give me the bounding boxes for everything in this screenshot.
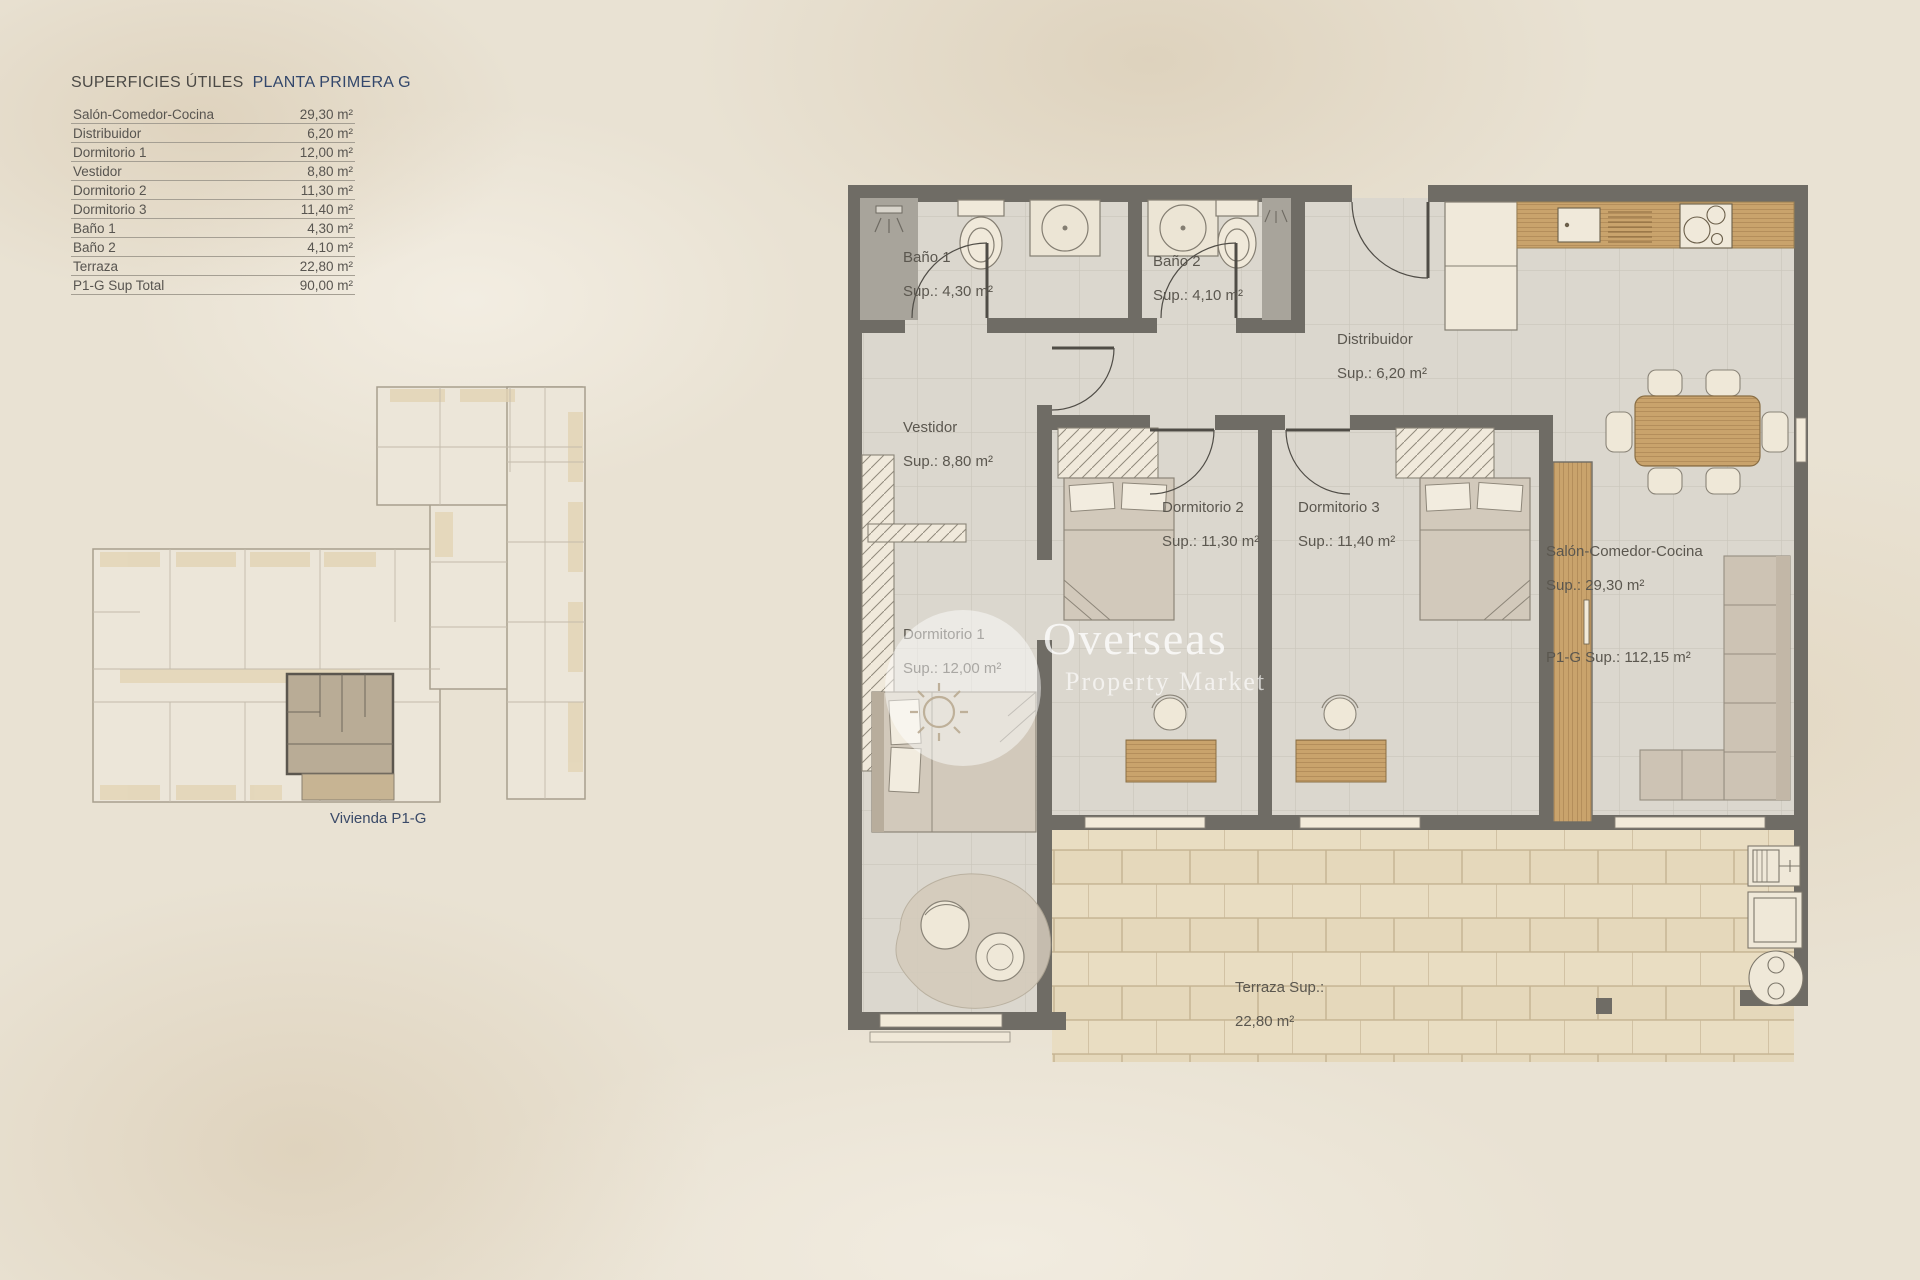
room-label-total: P1-G Sup.: 112,15 m² [1546,650,1691,665]
row-value: 4,10 m² [307,240,353,255]
wardrobe [1058,428,1158,478]
row-label: Baño 2 [73,240,116,255]
lounge-chair [921,901,969,949]
room-name: Dormitorio 1 [903,626,985,643]
table-row: P1-G Sup Total90,00 m² [71,276,355,295]
row-label: Dormitorio 3 [73,202,147,217]
row-label: Terraza [73,259,118,274]
rug [896,874,1051,1008]
outdoor-burner [1749,951,1803,1005]
bed [872,692,1036,832]
desk [1296,740,1386,782]
table-row: Vestidor8,80 m² [71,162,355,181]
table-row: Baño 14,30 m² [71,219,355,238]
table-row: Baño 24,10 m² [71,238,355,257]
table-title-main: SUPERFICIES ÚTILES [71,74,244,91]
sink-icon [1030,200,1100,256]
bed [1064,478,1174,620]
kitchen-counter [1517,202,1794,248]
room-sup: Sup.: 29,30 m² [1546,578,1703,593]
table-row: Distribuidor6,20 m² [71,124,355,143]
room-label-bano2: Baño 2Sup.: 4,10 m² [1153,254,1243,303]
row-value: 22,80 m² [300,259,353,274]
room-name: Distribuidor [1337,331,1413,348]
room-sup: Sup.: 8,80 m² [903,454,993,469]
room-label-salon: Salón-Comedor-CocinaSup.: 29,30 m² [1546,544,1703,593]
room-sup: Sup.: 6,20 m² [1337,366,1427,381]
surfaces-table: SUPERFICIES ÚTILESPLANTA PRIMERA G Salón… [71,74,355,295]
desk-chair [1324,698,1356,730]
room-name: P1-G Sup.: 112,15 m² [1546,649,1691,666]
room-sup: Sup.: 11,40 m² [1298,534,1395,549]
table-row: Terraza22,80 m² [71,257,355,276]
room-name: Terraza Sup.: [1235,979,1324,996]
row-label: Distribuidor [73,126,141,141]
room-label-distribuidor: DistribuidorSup.: 6,20 m² [1337,332,1427,381]
room-sup: Sup.: 4,10 m² [1153,288,1243,303]
row-label: P1-G Sup Total [73,278,164,293]
wardrobe [1396,428,1494,478]
row-value: 4,30 m² [307,221,353,236]
row-label: Baño 1 [73,221,116,236]
overview-caption: Vivienda P1-G [330,810,426,827]
row-value: 12,00 m² [300,145,353,160]
lounge-chair [976,933,1024,981]
table-row: Dormitorio 112,00 m² [71,143,355,162]
wood-partition [1553,462,1592,822]
row-label: Dormitorio 2 [73,183,147,198]
row-value: 11,30 m² [301,183,353,198]
room-label-bano1: Baño 1Sup.: 4,30 m² [903,250,993,299]
room-label-dorm1: Dormitorio 1Sup.: 12,00 m² [903,627,1001,676]
room-name: Baño 2 [1153,253,1201,270]
sink-icon [1148,200,1218,256]
room-name: Vestidor [903,419,957,436]
terrace-floor [1052,830,1794,1062]
floor-plan-sheet: SUPERFICIES ÚTILESPLANTA PRIMERA G Salón… [0,0,1920,1280]
room-name: Baño 1 [903,249,951,266]
room-sup: Sup.: 11,30 m² [1162,534,1259,549]
table-row: Salón-Comedor-Cocina29,30 m² [71,105,355,124]
room-sup: 22,80 m² [1235,1014,1324,1029]
desk-chair [1154,698,1186,730]
row-value: 29,30 m² [300,107,353,122]
table-title: SUPERFICIES ÚTILESPLANTA PRIMERA G [71,74,355,92]
row-value: 90,00 m² [300,278,353,293]
room-name: Salón-Comedor-Cocina [1546,543,1703,560]
building-overview-plan [80,372,725,812]
room-name: Dormitorio 2 [1162,499,1244,516]
overview-highlighted-unit [287,674,394,800]
table-row: Dormitorio 211,30 m² [71,181,355,200]
row-label: Dormitorio 1 [73,145,147,160]
room-label-vestidor: VestidorSup.: 8,80 m² [903,420,993,469]
outdoor-sink [1748,846,1800,886]
terrace-drain [1596,998,1612,1014]
table-title-plant: PLANTA PRIMERA G [253,74,411,91]
row-value: 8,80 m² [307,164,353,179]
room-sup: Sup.: 12,00 m² [903,661,1001,676]
row-value: 11,40 m² [301,202,353,217]
desk [1126,740,1216,782]
room-label-dorm2: Dormitorio 2Sup.: 11,30 m² [1162,500,1259,549]
outdoor-cabinet [1748,892,1802,948]
row-label: Salón-Comedor-Cocina [73,107,214,122]
row-label: Vestidor [73,164,122,179]
room-name: Dormitorio 3 [1298,499,1380,516]
room-label-dorm3: Dormitorio 3Sup.: 11,40 m² [1298,500,1395,549]
row-value: 6,20 m² [307,126,353,141]
shower-icon [1262,198,1291,320]
table-row: Dormitorio 311,40 m² [71,200,355,219]
bed [1420,478,1530,620]
room-sup: Sup.: 4,30 m² [903,284,993,299]
entry-closet [1445,202,1517,330]
room-label-terraza: Terraza Sup.:22,80 m² [1235,980,1324,1029]
